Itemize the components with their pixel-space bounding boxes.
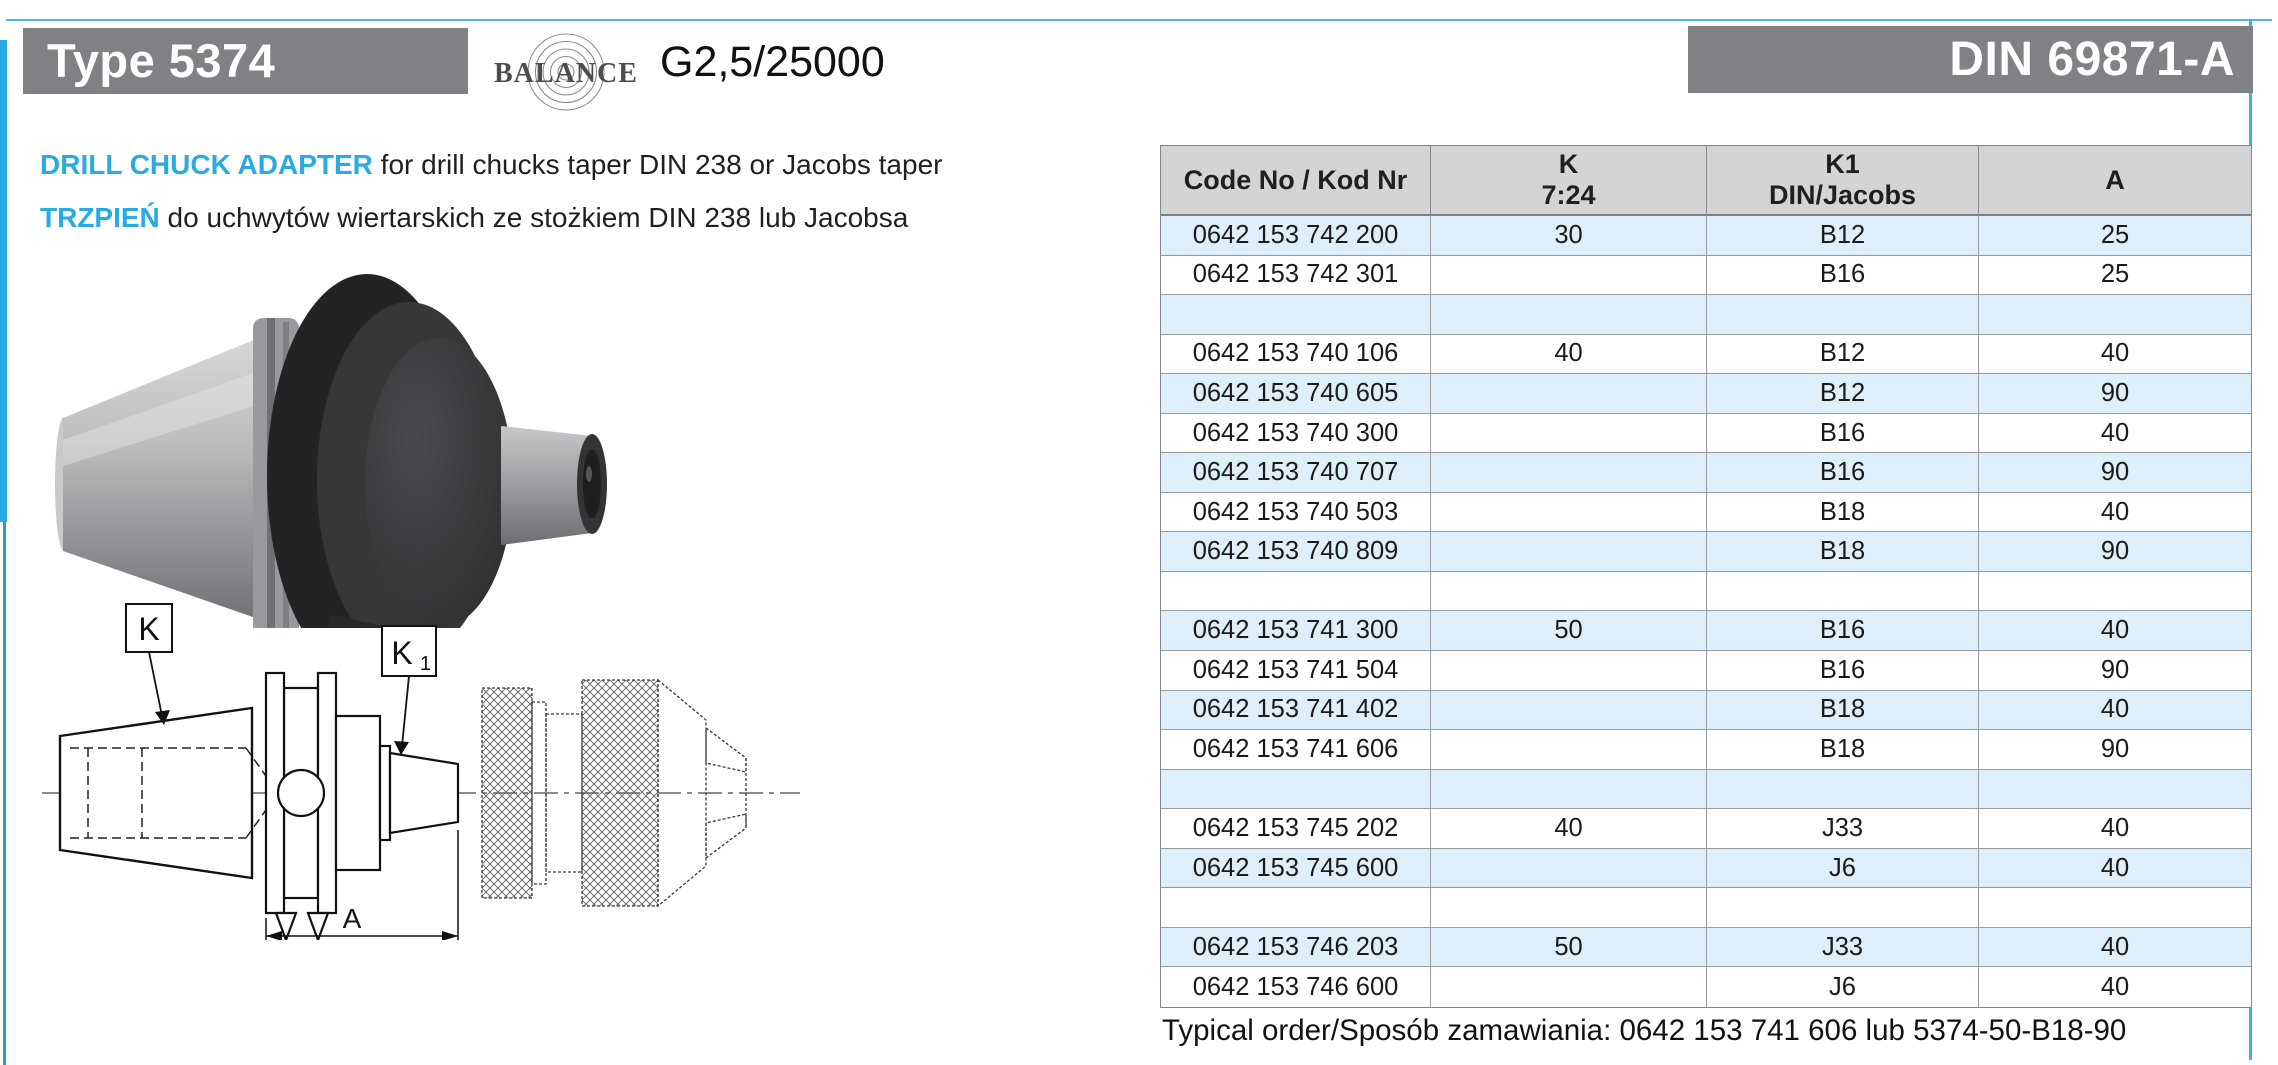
table-cell-a — [1979, 770, 2251, 809]
column-header-k1: K1DIN/Jacobs — [1707, 146, 1979, 214]
table-cell-code: 0642 153 740 300 — [1161, 414, 1431, 453]
table-cell-a: 40 — [1979, 849, 2251, 888]
table-cell-a: 90 — [1979, 532, 2251, 571]
table-cell-a: 40 — [1979, 809, 2251, 848]
column-header-k: K7:24 — [1431, 146, 1707, 214]
din-label: DIN 69871-A — [1949, 33, 2235, 86]
table-cell-a: 40 — [1979, 611, 2251, 650]
left-accent-line — [3, 522, 6, 1065]
k-label: K — [126, 604, 172, 725]
k1-label-text: K — [391, 635, 412, 671]
typical-order-note: Typical order/Sposób zamawiania: 0642 15… — [1162, 1014, 2126, 1048]
table-cell-k — [1431, 730, 1707, 769]
table-cell-a: 90 — [1979, 374, 2251, 413]
table-cell-code: 0642 153 741 300 — [1161, 611, 1431, 650]
table-cell-k — [1431, 691, 1707, 730]
spec-table: Code No / Kod Nr K7:24 K1DIN/Jacobs A 06… — [1160, 145, 2252, 1008]
table-cell-code: 0642 153 746 203 — [1161, 928, 1431, 967]
table-cell-k1: B12 — [1707, 335, 1979, 374]
table-cell-k1: B18 — [1707, 532, 1979, 571]
table-cell-a: 40 — [1979, 691, 2251, 730]
table-cell-code: 0642 153 745 600 — [1161, 849, 1431, 888]
table-row: 0642 153 745 600J640 — [1161, 849, 2251, 889]
table-cell-k1: B18 — [1707, 730, 1979, 769]
product-photo — [55, 228, 655, 628]
table-cell-code: 0642 153 740 605 — [1161, 374, 1431, 413]
table-cell-a: 40 — [1979, 967, 2251, 1007]
table-cell-a: 90 — [1979, 651, 2251, 690]
type-label: Type 5374 — [47, 34, 275, 87]
table-cell-k — [1431, 849, 1707, 888]
top-accent-line — [6, 19, 2272, 21]
table-cell-k — [1431, 414, 1707, 453]
table-cell-code: 0642 153 745 202 — [1161, 809, 1431, 848]
column-header-code: Code No / Kod Nr — [1161, 146, 1431, 214]
table-cell-k1 — [1707, 770, 1979, 809]
table-cell-code: 0642 153 741 504 — [1161, 651, 1431, 690]
table-cell-a — [1979, 295, 2251, 334]
table-row — [1161, 888, 2251, 928]
table-cell-k1: B18 — [1707, 691, 1979, 730]
table-cell-k: 40 — [1431, 335, 1707, 374]
table-row: 0642 153 740 809B1890 — [1161, 532, 2251, 572]
table-cell-code: 0642 153 740 503 — [1161, 493, 1431, 532]
table-cell-k: 50 — [1431, 611, 1707, 650]
table-cell-a: 90 — [1979, 453, 2251, 492]
table-cell-k1: J6 — [1707, 967, 1979, 1007]
table-cell-k — [1431, 493, 1707, 532]
table-cell-k: 30 — [1431, 216, 1707, 255]
table-row: 0642 153 741 30050B1640 — [1161, 611, 2251, 651]
table-cell-k1: B12 — [1707, 374, 1979, 413]
table-cell-a: 25 — [1979, 216, 2251, 255]
table-cell-k1: J6 — [1707, 849, 1979, 888]
a-dimension-label: A — [343, 903, 362, 934]
table-cell-k — [1431, 888, 1707, 927]
table-row: 0642 153 742 20030B1225 — [1161, 216, 2251, 256]
table-cell-k — [1431, 453, 1707, 492]
table-cell-a: 40 — [1979, 335, 2251, 374]
table-cell-k1: B18 — [1707, 493, 1979, 532]
table-cell-k1: J33 — [1707, 809, 1979, 848]
table-row: 0642 153 745 20240J3340 — [1161, 809, 2251, 849]
balance-logo-icon: BALANCE — [492, 26, 652, 122]
table-cell-k — [1431, 532, 1707, 571]
table-row: 0642 153 741 606B1890 — [1161, 730, 2251, 770]
table-row: 0642 153 741 504B1690 — [1161, 651, 2251, 691]
table-cell-k1: B16 — [1707, 414, 1979, 453]
table-row — [1161, 572, 2251, 612]
balance-grade: G2,5/25000 — [660, 36, 885, 88]
table-cell-code: 0642 153 746 600 — [1161, 967, 1431, 1007]
table-cell-k: 50 — [1431, 928, 1707, 967]
table-cell-k1: B16 — [1707, 453, 1979, 492]
din-header-box: DIN 69871-A — [1688, 26, 2253, 93]
table-cell-code: 0642 153 740 707 — [1161, 453, 1431, 492]
table-cell-a — [1979, 572, 2251, 611]
table-cell-k1: B16 — [1707, 611, 1979, 650]
table-cell-k1: B12 — [1707, 216, 1979, 255]
table-cell-k1: B16 — [1707, 651, 1979, 690]
k1-label-subscript: 1 — [420, 653, 431, 675]
k-label-text: K — [138, 611, 159, 647]
table-cell-k — [1431, 572, 1707, 611]
table-row: 0642 153 746 600J640 — [1161, 967, 2251, 1007]
k1-label: K 1 — [382, 626, 436, 755]
table-cell-k1 — [1707, 888, 1979, 927]
table-cell-k — [1431, 651, 1707, 690]
table-row: 0642 153 740 503B1840 — [1161, 493, 2251, 533]
left-accent-bar — [0, 40, 7, 522]
description-line-en: DRILL CHUCK ADAPTER for drill chucks tap… — [40, 138, 942, 191]
table-cell-k — [1431, 256, 1707, 295]
table-cell-code — [1161, 572, 1431, 611]
column-header-a: A — [1979, 146, 2251, 214]
table-row: 0642 153 741 402B1840 — [1161, 691, 2251, 731]
table-cell-a: 25 — [1979, 256, 2251, 295]
table-row: 0642 153 740 605B1290 — [1161, 374, 2251, 414]
table-cell-code: 0642 153 740 106 — [1161, 335, 1431, 374]
table-body: 0642 153 742 20030B12250642 153 742 301B… — [1161, 216, 2251, 1007]
catalog-page: Type 5374 BALANCE G2,5/25000 DIN 69871-A… — [0, 0, 2278, 1065]
table-cell-code: 0642 153 740 809 — [1161, 532, 1431, 571]
table-header-row: Code No / Kod Nr K7:24 K1DIN/Jacobs A — [1161, 146, 2251, 216]
table-cell-a — [1979, 888, 2251, 927]
description-rest-en: for drill chucks taper DIN 238 or Jacobs… — [373, 149, 943, 180]
table-row: 0642 153 740 300B1640 — [1161, 414, 2251, 454]
type-header-box: Type 5374 — [23, 28, 468, 94]
table-cell-code: 0642 153 741 402 — [1161, 691, 1431, 730]
table-row: 0642 153 742 301B1625 — [1161, 256, 2251, 296]
table-cell-code: 0642 153 742 301 — [1161, 256, 1431, 295]
table-cell-code — [1161, 770, 1431, 809]
table-cell-code — [1161, 295, 1431, 334]
table-row: 0642 153 746 20350J3340 — [1161, 928, 2251, 968]
table-row — [1161, 295, 2251, 335]
table-cell-a: 40 — [1979, 414, 2251, 453]
table-cell-code: 0642 153 742 200 — [1161, 216, 1431, 255]
table-cell-code — [1161, 888, 1431, 927]
table-cell-k1: J33 — [1707, 928, 1979, 967]
table-cell-k1: B16 — [1707, 256, 1979, 295]
table-row: 0642 153 740 707B1690 — [1161, 453, 2251, 493]
table-cell-code: 0642 153 741 606 — [1161, 730, 1431, 769]
table-cell-a: 40 — [1979, 928, 2251, 967]
description-highlight-en: DRILL CHUCK ADAPTER — [40, 149, 373, 180]
table-cell-k — [1431, 770, 1707, 809]
table-row: 0642 153 740 10640B1240 — [1161, 335, 2251, 375]
table-cell-k: 40 — [1431, 809, 1707, 848]
table-row — [1161, 770, 2251, 810]
table-cell-k — [1431, 967, 1707, 1007]
table-cell-a: 40 — [1979, 493, 2251, 532]
table-cell-a: 90 — [1979, 730, 2251, 769]
technical-drawing: K K 1 A — [30, 588, 810, 940]
table-cell-k — [1431, 374, 1707, 413]
table-cell-k1 — [1707, 572, 1979, 611]
table-cell-k1 — [1707, 295, 1979, 334]
table-cell-k — [1431, 295, 1707, 334]
balance-word: BALANCE — [494, 58, 638, 89]
